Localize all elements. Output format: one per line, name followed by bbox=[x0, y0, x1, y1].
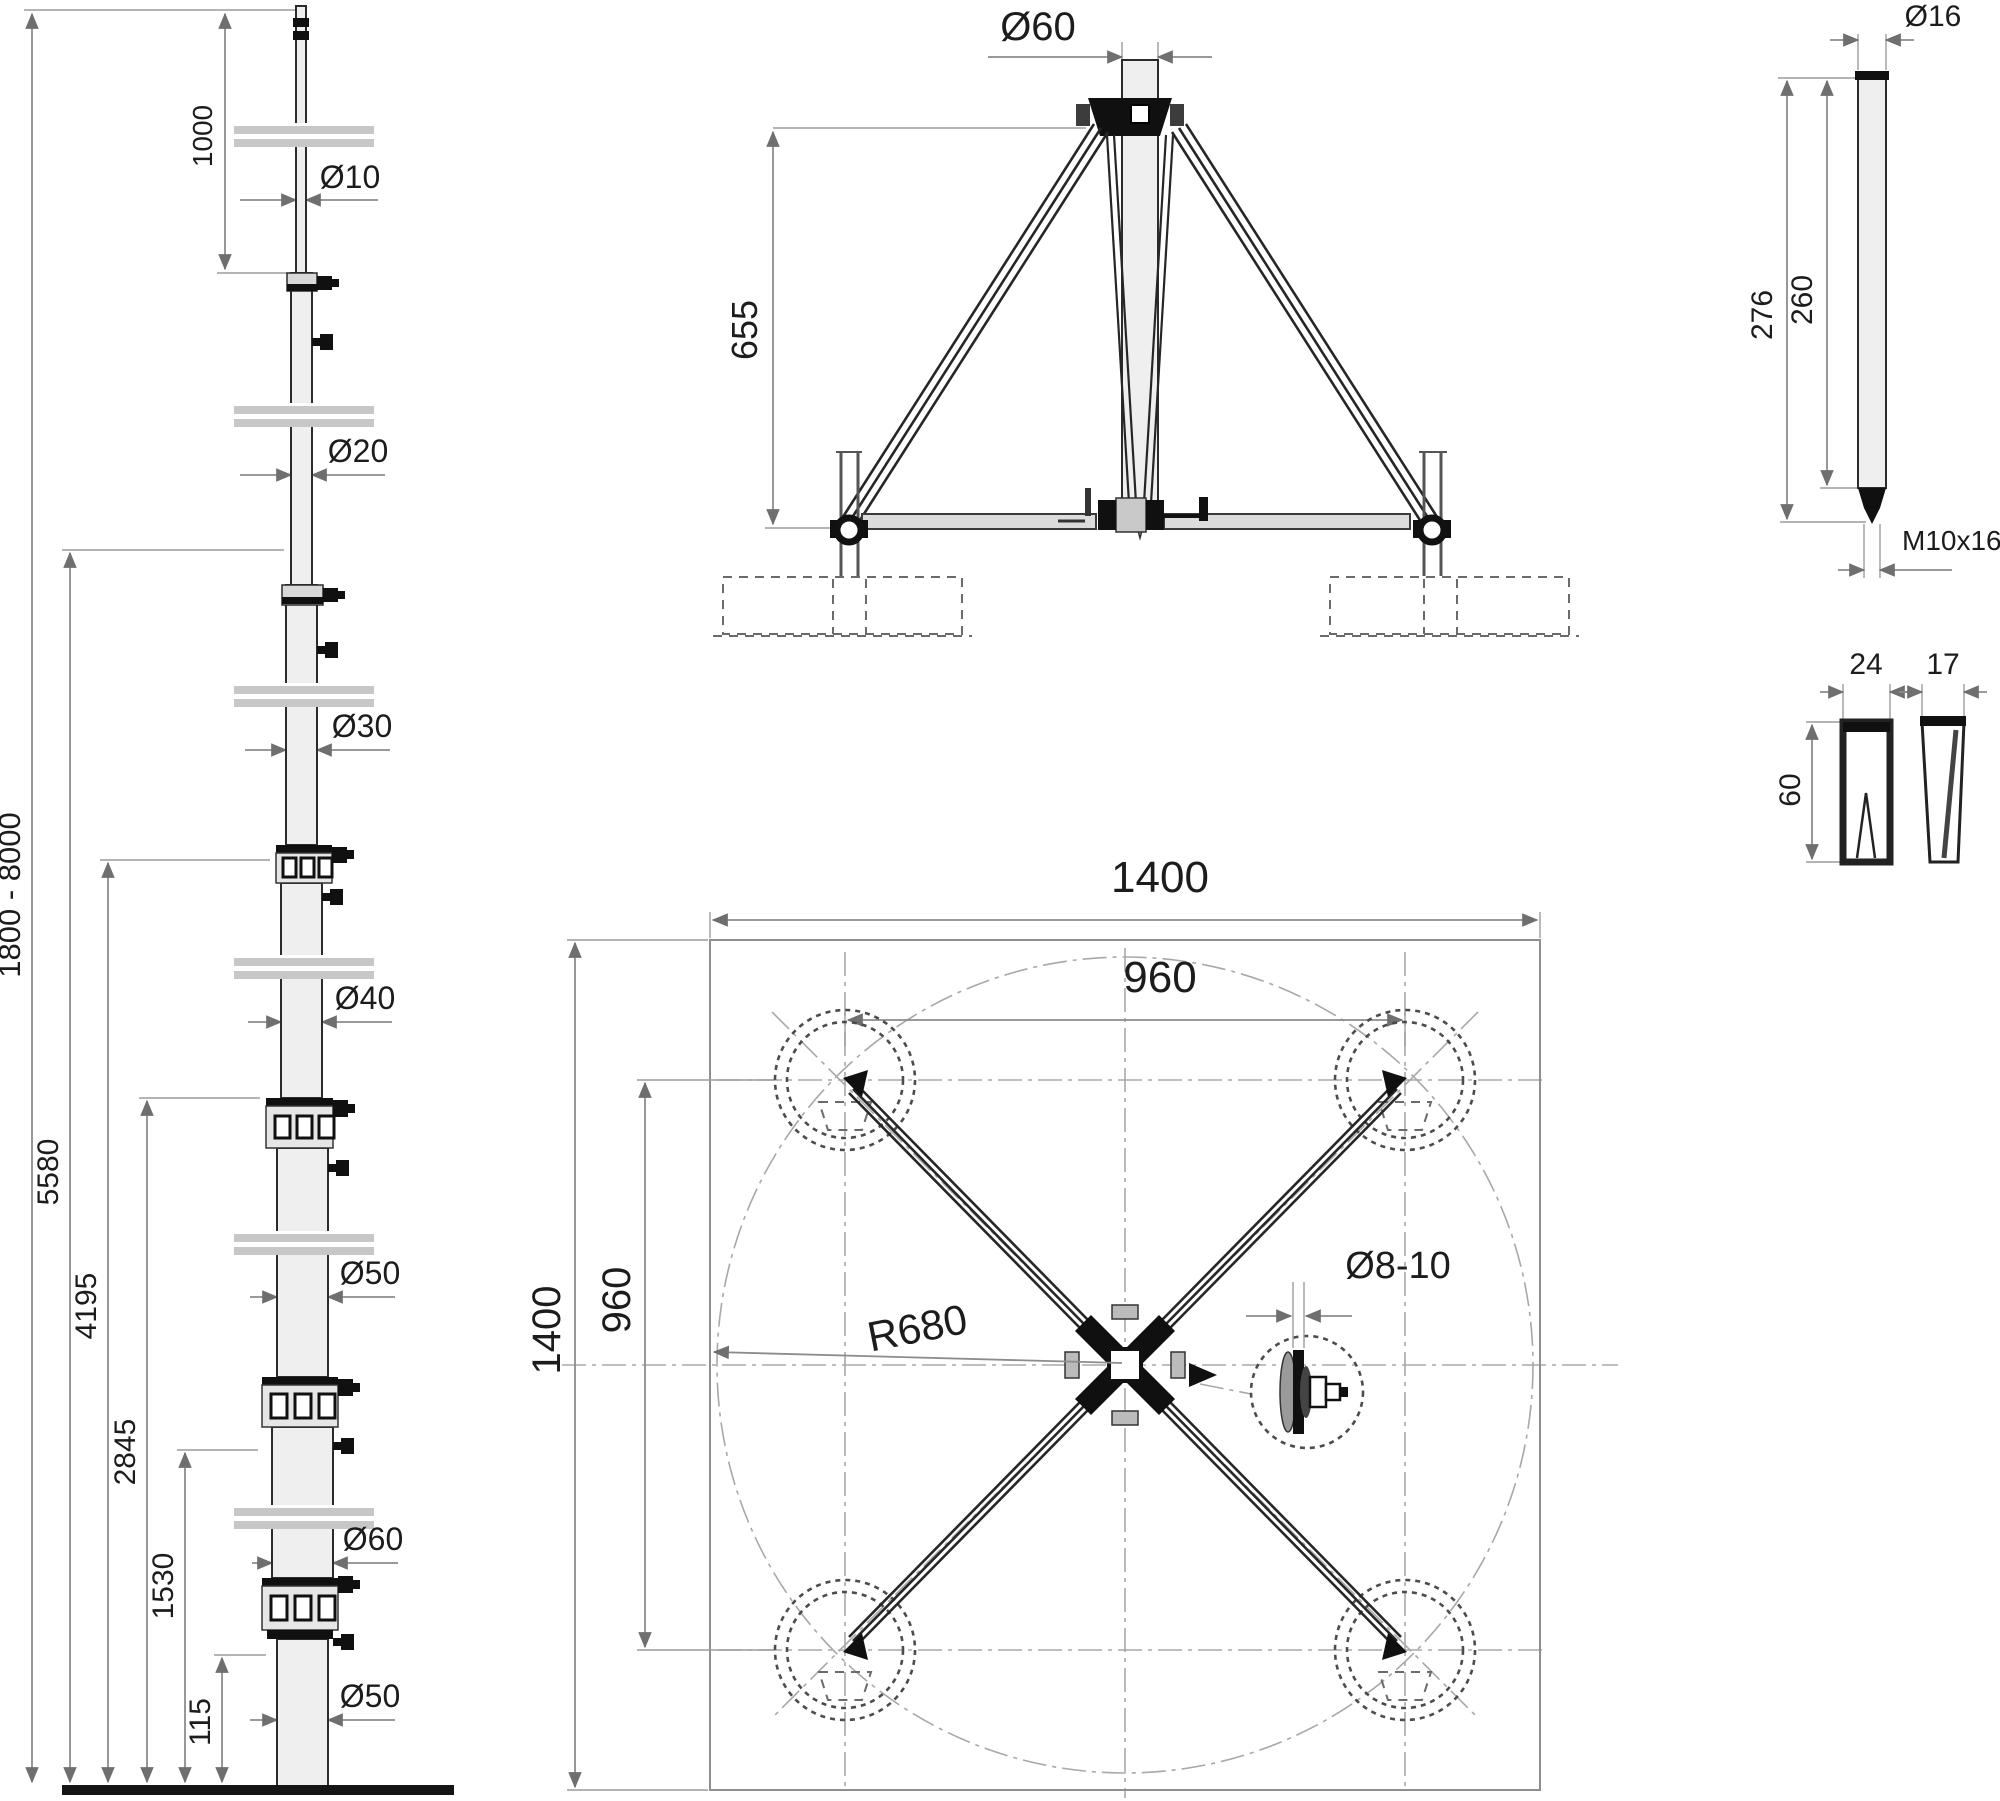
dim-2845: 2845 bbox=[109, 1419, 142, 1486]
dim-5580: 5580 bbox=[32, 1139, 65, 1206]
dim-front-dia60: Ø60 bbox=[1000, 5, 1076, 49]
wedge-clamp-detail: 24 17 60 bbox=[1774, 648, 1987, 862]
dim-plan-1400-top: 1400 bbox=[1111, 853, 1209, 902]
dim-1000: 1000 bbox=[187, 105, 218, 167]
dim-dia60: Ø60 bbox=[343, 1521, 403, 1557]
dim-dia50: Ø50 bbox=[340, 1255, 400, 1291]
dim-1530: 1530 bbox=[147, 1553, 180, 1620]
front-concrete-blocks bbox=[713, 577, 1579, 636]
drawing-sheet: 1800 - 8000 5580 4195 2845 1530 115 1000… bbox=[0, 0, 2000, 1801]
dim-plan-960-left: 960 bbox=[595, 1267, 639, 1334]
dim-dia50-base: Ø50 bbox=[340, 1678, 400, 1714]
dim-height-range: 1800 - 8000 bbox=[0, 812, 27, 977]
dim-dia8-10: Ø8-10 bbox=[1345, 1245, 1451, 1287]
dim-dia20: Ø20 bbox=[328, 433, 388, 469]
dim-260: 260 bbox=[1786, 275, 1819, 325]
dim-655: 655 bbox=[724, 300, 765, 360]
dim-4195: 4195 bbox=[70, 1273, 103, 1340]
dim-276: 276 bbox=[1746, 290, 1779, 340]
dim-plan-1400-left: 1400 bbox=[525, 1286, 569, 1375]
dim-dia30: Ø30 bbox=[332, 708, 392, 744]
dim-plan-960-top: 960 bbox=[1123, 953, 1196, 1002]
mast-elevation-view: 1800 - 8000 5580 4195 2845 1530 115 1000… bbox=[0, 6, 454, 1795]
dim-dia16: Ø16 bbox=[1905, 0, 1962, 33]
dim-r680: R680 bbox=[863, 1295, 971, 1360]
technical-drawing: 1800 - 8000 5580 4195 2845 1530 115 1000… bbox=[0, 0, 2000, 1801]
dim-115: 115 bbox=[184, 1698, 217, 1746]
dim-24: 24 bbox=[1849, 648, 1882, 681]
ground-line bbox=[62, 1785, 454, 1795]
base-plan-view: 1400 960 1400 960 R680 Ø8-10 bbox=[525, 853, 1618, 1798]
dim-60: 60 bbox=[1774, 773, 1807, 806]
dim-dia10: Ø10 bbox=[320, 159, 380, 195]
air-rod-detail: Ø16 276 260 M10x16 bbox=[1746, 0, 2000, 578]
dim-thread: M10x16 bbox=[1902, 525, 2000, 556]
tripod-front-view: Ø60 655 bbox=[713, 5, 1579, 636]
dim-17: 17 bbox=[1926, 648, 1959, 681]
dim-dia40: Ø40 bbox=[335, 980, 395, 1016]
